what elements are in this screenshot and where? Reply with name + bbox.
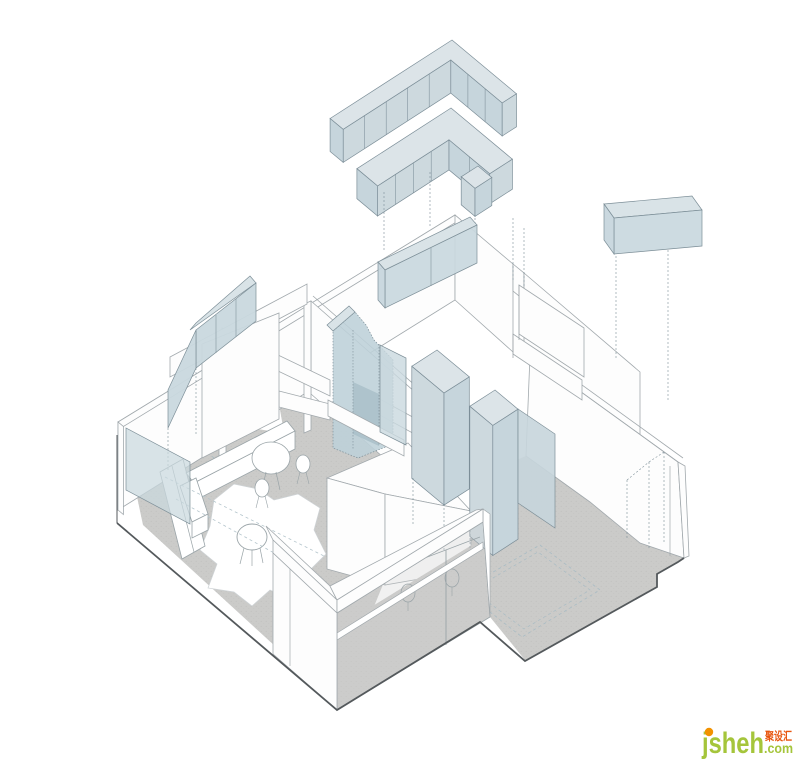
svg-text:.com: .com xyxy=(764,741,793,756)
